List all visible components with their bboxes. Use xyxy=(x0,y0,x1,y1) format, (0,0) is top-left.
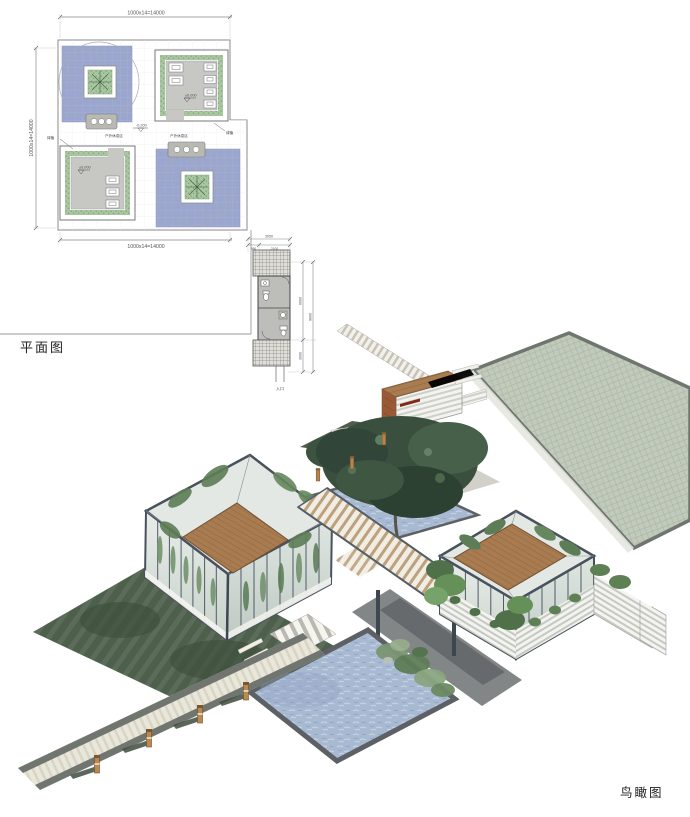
architectural-sheet: ±0.000 ±0.000 户外休息区 xyxy=(0,0,690,817)
dim-strip-6600: 6600 xyxy=(299,297,303,305)
dim-strip-b: 2100 xyxy=(271,247,279,251)
level-mark: ±0.000 xyxy=(79,166,91,170)
birdseye-figure xyxy=(18,324,690,790)
plan-service-strip: 入口 3050 950 2100 6600 3000 9600 xyxy=(246,235,316,392)
dim-top: 1000x14=14000 xyxy=(127,11,164,17)
plan-court-bottomright-water xyxy=(156,149,240,227)
planting-leader-left: 绿植 xyxy=(47,135,55,140)
dim-strip-total: 3050 xyxy=(265,235,273,239)
area-label-right: 户外休息区 xyxy=(170,133,188,138)
dim-strip-a: 950 xyxy=(251,247,257,251)
dim-strip-9600: 9600 xyxy=(309,313,313,321)
plan-figure: ±0.000 ±0.000 户外休息区 xyxy=(0,11,251,335)
area-label-left: 户外休息区 xyxy=(105,133,123,138)
dim-bottom: 1000x14=14000 xyxy=(127,244,164,250)
plan-title: 平面图 xyxy=(20,340,65,355)
site-boundary-line xyxy=(0,230,251,334)
plan-room-topright: ±0.000 xyxy=(155,50,228,121)
architectural-drawing: ±0.000 ±0.000 户外休息区 xyxy=(0,0,690,817)
entrance-label: 入口 xyxy=(276,386,284,391)
planting-leader-right: 绿植 xyxy=(226,130,234,135)
level-mark: ±0.000 xyxy=(185,94,197,98)
louver-walls xyxy=(590,564,666,655)
dim-left: 1000x14=14000 xyxy=(29,119,35,156)
plan-court-topleft-water xyxy=(59,42,139,122)
furniture xyxy=(106,176,119,208)
entry-path xyxy=(337,324,433,385)
dim-strip-3000: 3000 xyxy=(299,352,303,360)
birdseye-title: 鸟瞰图 xyxy=(620,785,664,800)
plan-room-bottomleft: ±0.000 xyxy=(60,146,135,220)
level-mark-center: -0.200 xyxy=(136,124,147,128)
